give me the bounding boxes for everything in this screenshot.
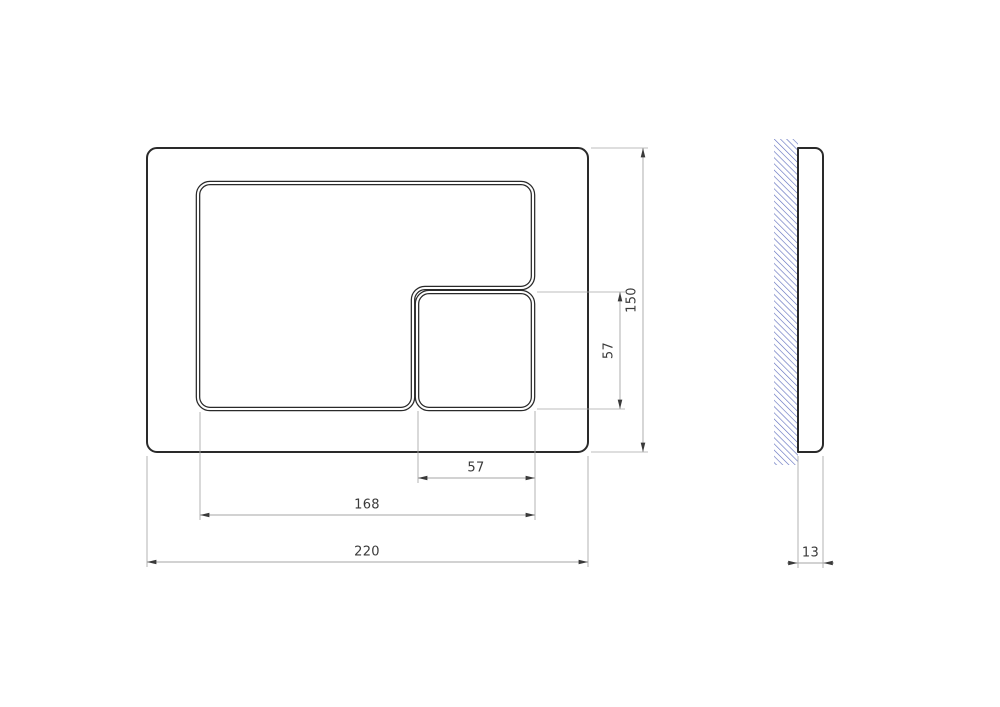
plate-profile bbox=[798, 148, 823, 452]
dimension-label: 57 bbox=[602, 342, 617, 359]
dimension-overall-height: 150 bbox=[591, 148, 648, 452]
small-button-outline bbox=[417, 292, 533, 409]
flush-plate-technical-drawing: 57 168 220 57 150 bbox=[0, 0, 1000, 707]
dimension-label: 13 bbox=[802, 546, 819, 561]
front-view bbox=[147, 148, 588, 452]
drawing-canvas: 57 168 220 57 150 bbox=[0, 0, 1000, 707]
dimension-label: 168 bbox=[354, 498, 380, 513]
dimension-label: 57 bbox=[467, 461, 484, 476]
dimension-thickness: 13 bbox=[787, 456, 834, 568]
dimension-label: 150 bbox=[625, 287, 640, 313]
wall-hatch bbox=[774, 139, 798, 465]
side-view bbox=[774, 139, 823, 465]
dimension-label: 220 bbox=[354, 545, 380, 560]
